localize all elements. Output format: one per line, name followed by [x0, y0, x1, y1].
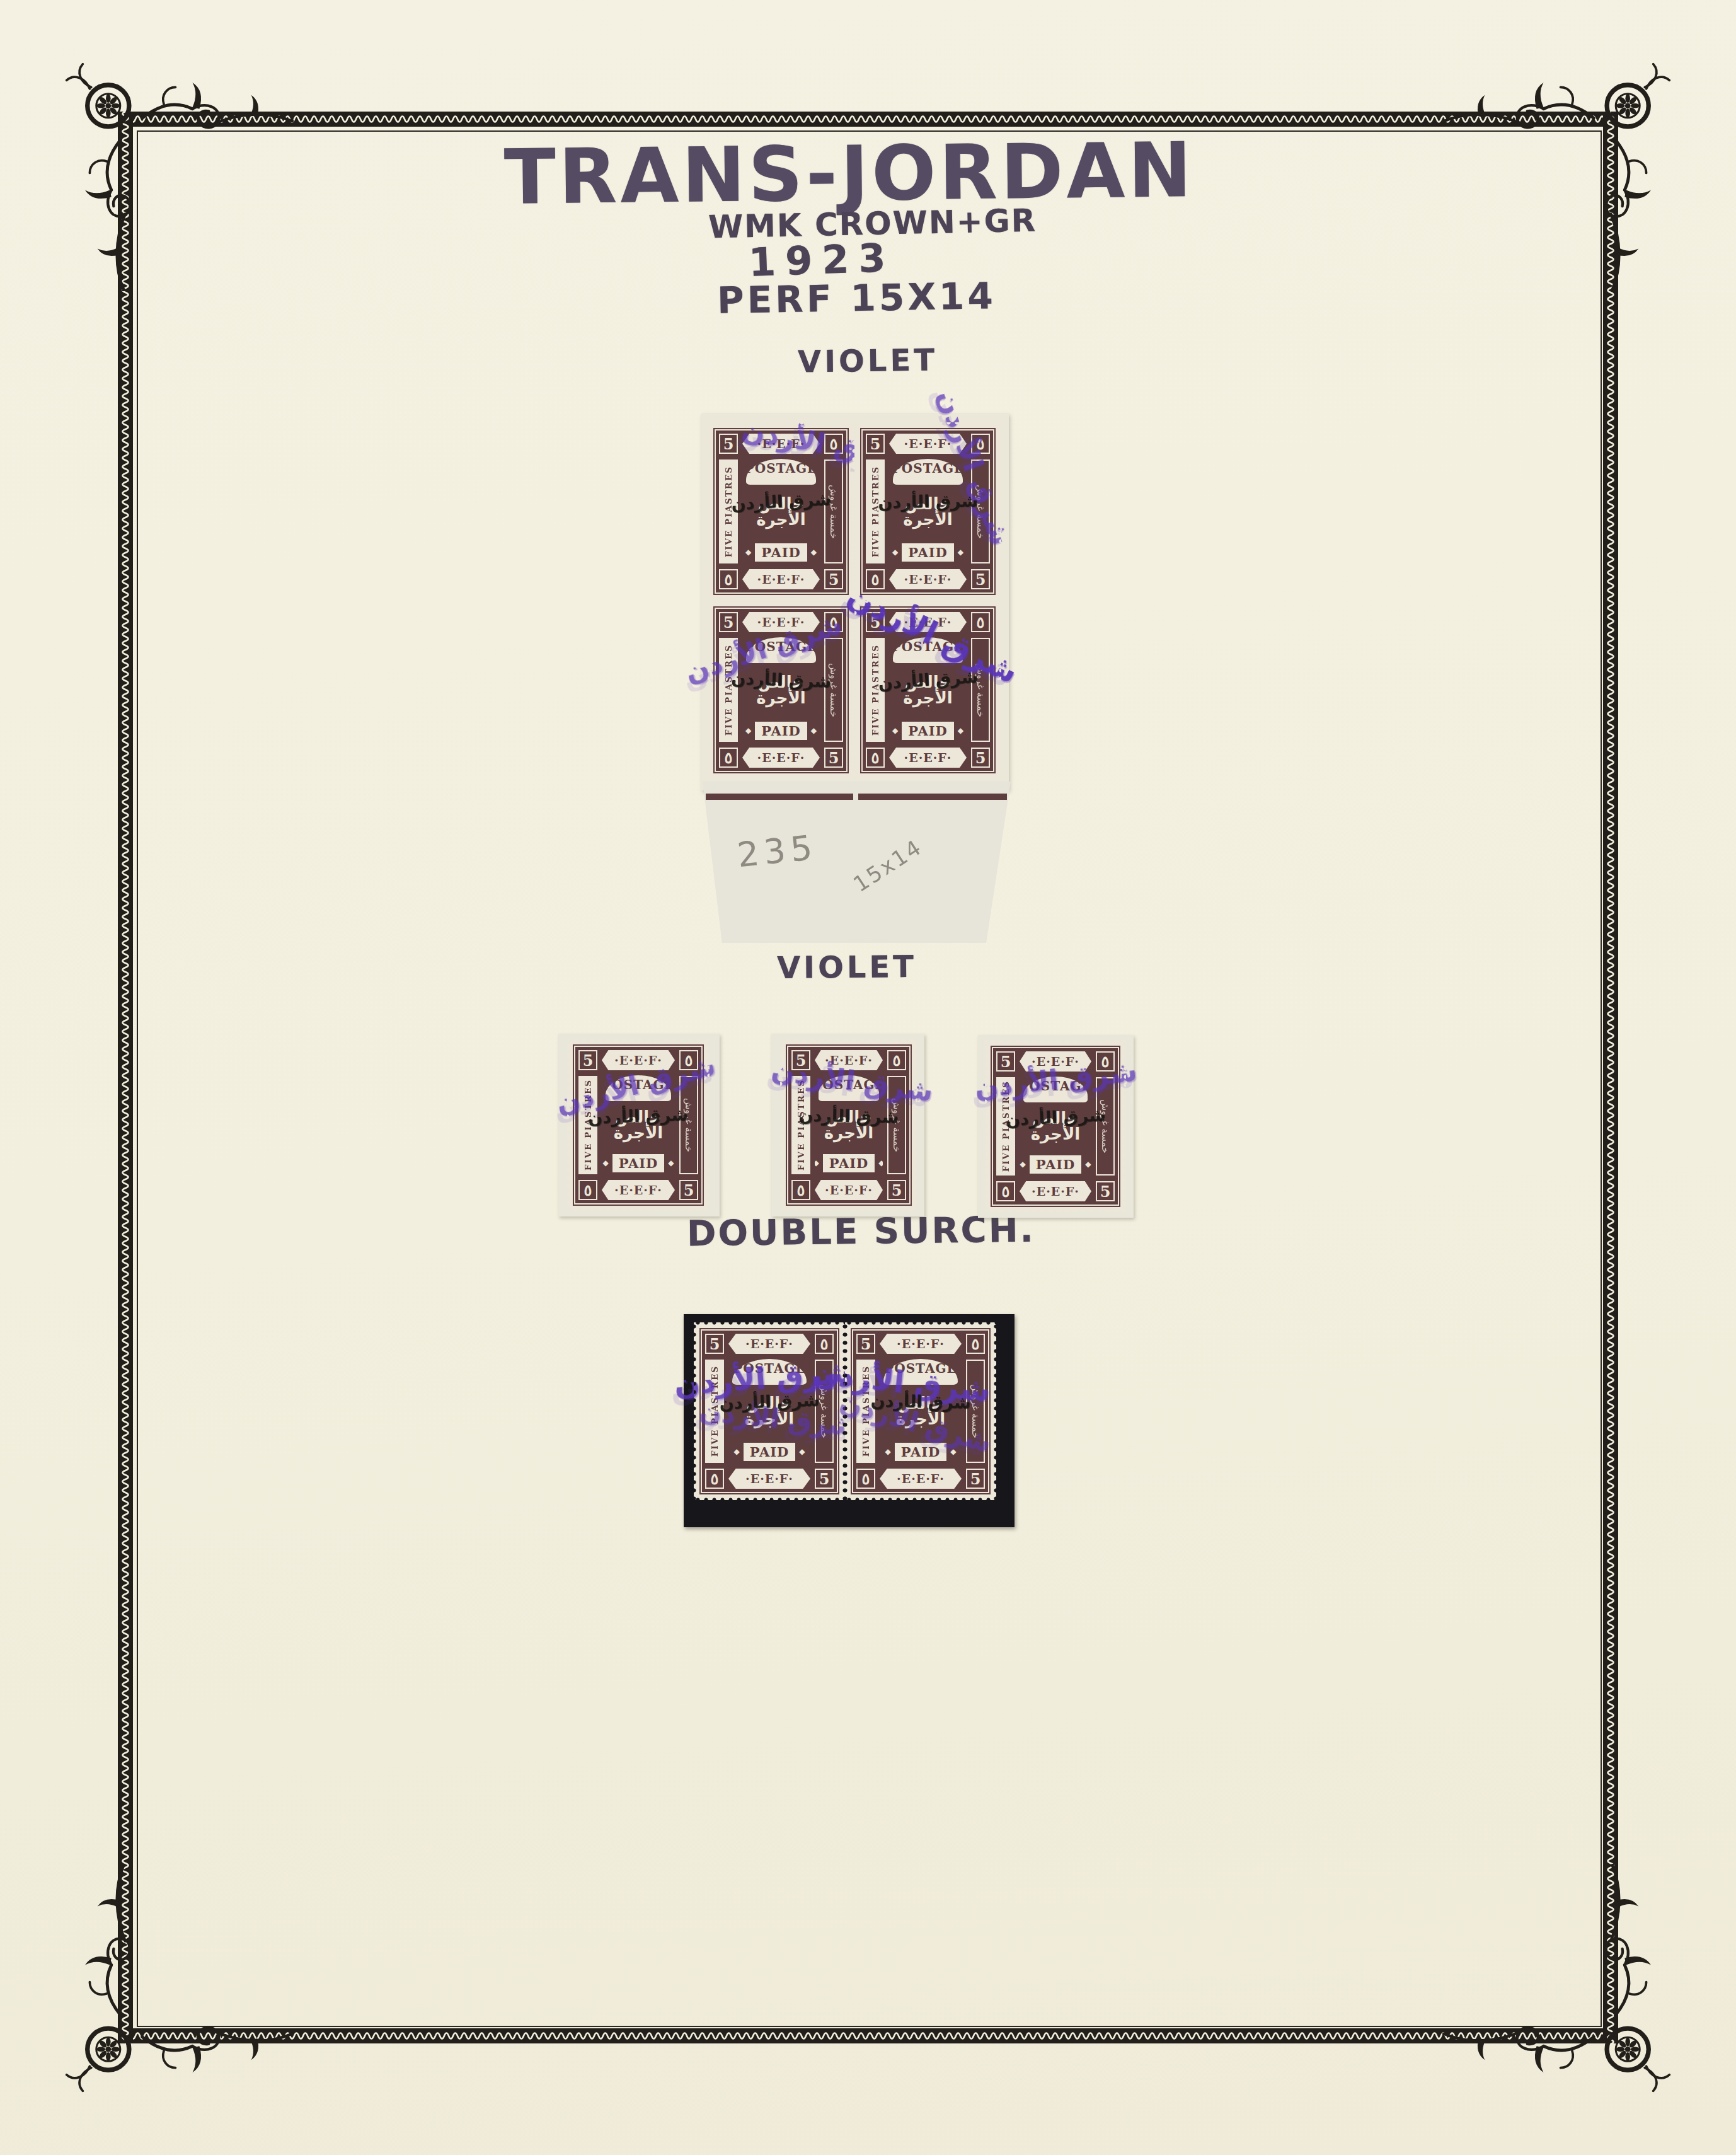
- black-arabic-overprint: شرق الأردن: [766, 1105, 931, 1128]
- value-box-bottom-left: ٥: [578, 1180, 597, 1200]
- value-box-bottom-right: 5: [971, 748, 990, 768]
- diamond-right-icon: ◆: [958, 548, 963, 557]
- postage-arch: POSTAGE: [893, 459, 963, 485]
- diamond-left-icon: ◆: [745, 548, 751, 557]
- value-box-top-right: ٥: [815, 1334, 834, 1354]
- black-arabic-overprint: شرق الأردن: [830, 1390, 1011, 1413]
- value-box-bottom-left: ٥: [719, 748, 738, 768]
- corner-flourish-top-right: [1442, 52, 1682, 291]
- selvage-pencil-number: 235: [736, 831, 819, 873]
- paid-row: ◆ PAID ◆: [889, 720, 967, 741]
- single-stamp-1: 5 ·E·E·F· ٥ FIVE PIASTRES POSTAGE خالص ا…: [567, 1039, 710, 1211]
- eef-stamp: 5 ·E·E·F· ٥ FIVE PIASTRES POSTAGE خالص ا…: [854, 601, 1001, 779]
- sheet-selvage-margin: 235 15x14: [699, 780, 1015, 945]
- value-box-bottom-right: 5: [966, 1469, 985, 1489]
- value-box-top-left: 5: [866, 434, 885, 454]
- block-stamp-3: 5 ·E·E·F· ٥ FIVE PIASTRES POSTAGE خالص ا…: [708, 601, 854, 779]
- value-box-bottom-right: 5: [1096, 1181, 1115, 1201]
- value-box-bottom-right: 5: [971, 569, 990, 589]
- postage-arch: POSTAGE: [746, 459, 816, 485]
- eef-banner-top: ·E·E·F·: [728, 1334, 810, 1354]
- eef-banner-bottom: ·E·E·F·: [728, 1469, 810, 1489]
- eef-banner-bottom: ·E·E·F·: [602, 1180, 675, 1200]
- value-box-bottom-left: ٥: [705, 1469, 724, 1489]
- block-stamp-4: 5 ·E·E·F· ٥ FIVE PIASTRES POSTAGE خالص ا…: [854, 601, 1001, 779]
- value-box-top-left: 5: [719, 612, 738, 632]
- diamond-right-icon: ◆: [811, 726, 817, 735]
- border-band-top: [118, 112, 1618, 127]
- page-title: TRANS-JORDAN: [503, 132, 1195, 215]
- eef-stamp: 5 ·E·E·F· ٥ FIVE PIASTRES POSTAGE خالص ا…: [845, 1322, 996, 1500]
- paid-row: ◆ PAID ◆: [742, 541, 820, 563]
- value-box-bottom-right: 5: [824, 748, 843, 768]
- paid-box: PAID: [755, 543, 807, 562]
- diamond-left-icon: ◆: [815, 1158, 819, 1167]
- eef-banner-top: ·E·E·F·: [880, 1334, 962, 1354]
- value-box-bottom-left: ٥: [791, 1180, 810, 1200]
- border-band-bottom: [118, 2028, 1618, 2043]
- eef-banner-bottom: ·E·E·F·: [889, 569, 967, 589]
- diamond-left-icon: ◆: [892, 726, 898, 735]
- value-box-bottom-right: 5: [887, 1180, 906, 1200]
- value-box-bottom-left: ٥: [866, 748, 885, 768]
- block-stamp-1: 5 ·E·E·F· ٥ FIVE PIASTRES POSTAGE خالص ا…: [708, 422, 854, 601]
- paid-box: PAID: [744, 1443, 796, 1461]
- single-stamp-2: 5 ·E·E·F· ٥ FIVE PIASTRES POSTAGE خالص ا…: [780, 1039, 917, 1211]
- value-box-top-right: ٥: [971, 612, 990, 632]
- side-panel-right: خمسة غروش: [679, 1076, 698, 1174]
- value-box-bottom-left: ٥: [996, 1181, 1015, 1201]
- paid-row: ◆ PAID ◆: [728, 1441, 810, 1462]
- corner-flourish-top-left: [54, 52, 294, 291]
- value-box-top-right: ٥: [966, 1334, 985, 1354]
- paid-box: PAID: [902, 543, 954, 562]
- paid-box: PAID: [612, 1154, 665, 1172]
- eef-banner-bottom: ·E·E·F·: [1020, 1181, 1091, 1201]
- side-panel-left-label: FIVE PIASTRES: [796, 1079, 806, 1170]
- eef-banner-bottom: ·E·E·F·: [742, 748, 820, 768]
- eef-stamp: 5 ·E·E·F· ٥ FIVE PIASTRES POSTAGE خالص ا…: [567, 1039, 710, 1211]
- paid-row: ◆ PAID ◆: [602, 1152, 675, 1174]
- paid-box: PAID: [823, 1154, 875, 1172]
- eef-banner-bottom: ·E·E·F·: [889, 748, 967, 768]
- jubilee-line-right: [858, 794, 1007, 800]
- eef-stamp: 5 ·E·E·F· ٥ FIVE PIASTRES POSTAGE خالص ا…: [985, 1040, 1126, 1213]
- paid-row: ◆ PAID ◆: [889, 541, 967, 563]
- eef-banner-bottom: ·E·E·F·: [742, 569, 820, 589]
- diamond-left-icon: ◆: [602, 1158, 608, 1167]
- value-box-bottom-right: 5: [824, 569, 843, 589]
- diamond-right-icon: ◆: [799, 1447, 805, 1456]
- value-box-top-left: 5: [856, 1334, 875, 1354]
- violet-label-top: VIOLET: [798, 344, 938, 376]
- paid-box: PAID: [902, 722, 954, 740]
- eef-banner-bottom: ·E·E·F·: [815, 1180, 883, 1200]
- eef-stamp: 5 ·E·E·F· ٥ FIVE PIASTRES POSTAGE خالص ا…: [780, 1039, 917, 1211]
- paid-row: ◆ PAID ◆: [742, 720, 820, 741]
- side-panel-right: خمسة غروش: [1096, 1077, 1115, 1176]
- block-stamp-2: 5 ·E·E·F· ٥ FIVE PIASTRES POSTAGE خالص ا…: [854, 422, 1001, 601]
- diamond-right-icon: ◆: [1085, 1160, 1091, 1169]
- perforation-heading: PERF 15X14: [717, 277, 997, 319]
- paid-box: PAID: [1030, 1155, 1082, 1174]
- paid-row: ◆ PAID ◆: [1020, 1153, 1091, 1175]
- value-box-bottom-left: ٥: [856, 1469, 875, 1489]
- value-box-bottom-right: 5: [679, 1180, 698, 1200]
- eef-stamp: 5 ·E·E·F· ٥ FIVE PIASTRES POSTAGE خالص ا…: [708, 601, 854, 779]
- diamond-right-icon: ◆: [811, 548, 817, 557]
- single-stamp-3: 5 ·E·E·F· ٥ FIVE PIASTRES POSTAGE خالص ا…: [985, 1040, 1126, 1213]
- album-page: TRANS-JORDAN WMK CROWN+GR 1923 PERF 15X1…: [0, 0, 1736, 2155]
- pair-stamp-2: 5 ·E·E·F· ٥ FIVE PIASTRES POSTAGE خالص ا…: [845, 1322, 996, 1500]
- diamond-left-icon: ◆: [733, 1447, 739, 1456]
- border-band-left: [118, 112, 133, 2043]
- diamond-right-icon: ◆: [958, 726, 963, 735]
- border-band-right: [1603, 112, 1618, 2043]
- corner-flourish-bottom-left: [54, 1864, 294, 2103]
- diamond-left-icon: ◆: [892, 548, 898, 557]
- jubilee-line-left: [706, 794, 853, 800]
- violet-label-middle: VIOLET: [777, 951, 917, 983]
- paid-box: PAID: [755, 722, 807, 740]
- corner-flourish-bottom-right: [1442, 1864, 1682, 2103]
- diamond-left-icon: ◆: [745, 726, 751, 735]
- paid-row: ◆ PAID ◆: [815, 1152, 883, 1174]
- value-box-top-right: ٥: [887, 1050, 906, 1070]
- eef-stamp: 5 ·E·E·F· ٥ FIVE PIASTRES POSTAGE خالص ا…: [708, 422, 854, 601]
- selvage-pencil-perf-note: 15x14: [850, 836, 926, 896]
- black-arabic-overprint: شرق الأردن: [839, 490, 1016, 513]
- value-box-top-left: 5: [578, 1050, 597, 1070]
- eef-banner-bottom: ·E·E·F·: [880, 1469, 962, 1489]
- diamond-left-icon: ◆: [1020, 1160, 1025, 1169]
- eef-stamp: 5 ·E·E·F· ٥ FIVE PIASTRES POSTAGE خالص ا…: [854, 422, 1001, 601]
- value-box-top-left: 5: [705, 1334, 724, 1354]
- diamond-left-icon: ◆: [885, 1447, 890, 1456]
- value-box-bottom-right: 5: [815, 1469, 834, 1489]
- double-surcharge-label: DOUBLE SURCH.: [687, 1212, 1035, 1252]
- value-box-bottom-left: ٥: [719, 569, 738, 589]
- diamond-right-icon: ◆: [668, 1158, 674, 1167]
- diamond-right-icon: ◆: [878, 1158, 883, 1167]
